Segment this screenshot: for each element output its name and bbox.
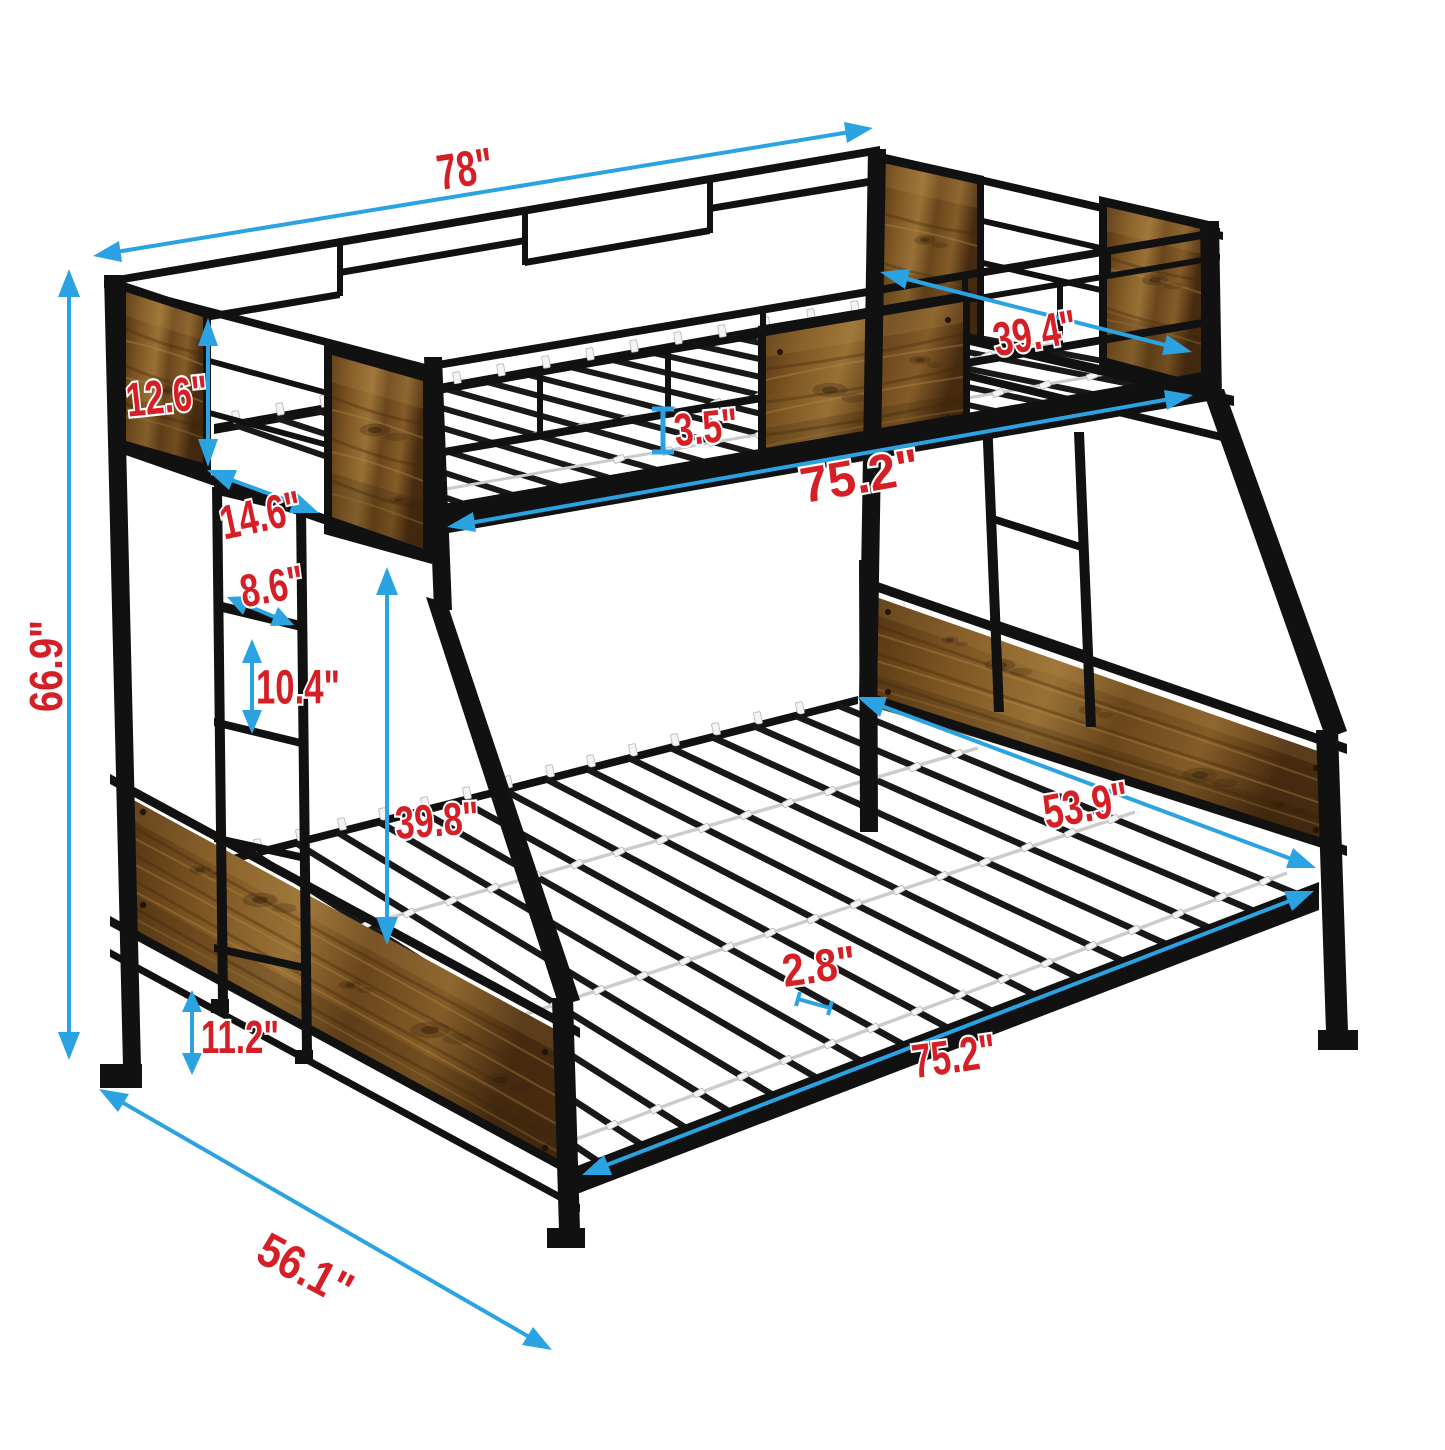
svg-text:2.8": 2.8": [779, 935, 860, 997]
svg-text:3.5": 3.5": [671, 398, 740, 456]
svg-text:39.8": 39.8": [393, 791, 480, 849]
svg-text:10.4": 10.4": [256, 662, 340, 715]
svg-text:66.9": 66.9": [20, 620, 72, 712]
svg-text:12.6": 12.6": [123, 366, 210, 427]
svg-text:8.6": 8.6": [236, 555, 308, 617]
svg-text:78": 78": [433, 137, 497, 201]
svg-text:11.2": 11.2": [201, 1011, 279, 1063]
